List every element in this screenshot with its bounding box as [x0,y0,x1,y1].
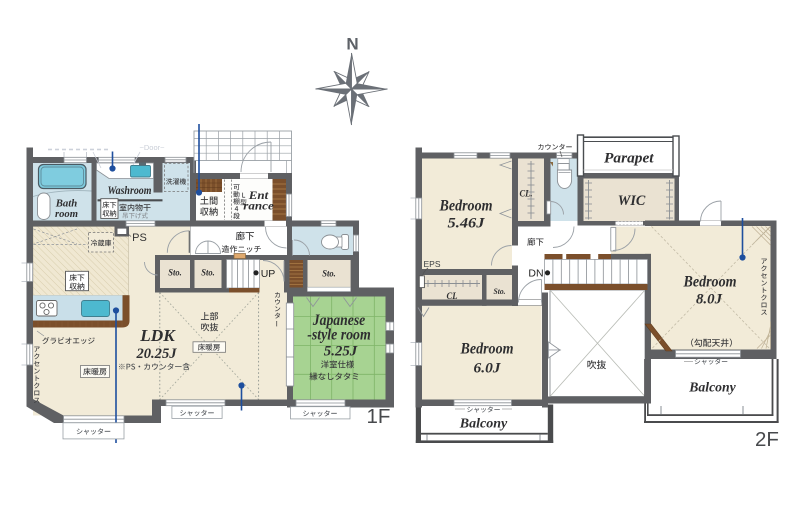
svg-text:Balcony: Balcony [459,416,508,431]
svg-text:Sto.: Sto. [168,269,182,279]
svg-text:DN: DN [528,268,543,280]
svg-text:Bath: Bath [55,199,78,210]
svg-text:N: N [346,35,358,54]
svg-text:Balcony: Balcony [688,380,736,395]
svg-text:6.0J: 6.0J [474,361,502,377]
svg-text:Bedroom: Bedroom [460,341,514,358]
svg-text:2F: 2F [755,428,779,451]
svg-text:Washroom: Washroom [108,183,152,197]
svg-text:8.0J: 8.0J [696,292,723,308]
svg-text:5.46J: 5.46J [448,216,486,232]
svg-text:CL.: CL. [520,190,533,200]
svg-text:EPS: EPS [423,259,440,269]
svg-text:rance: rance [243,201,274,213]
svg-text:CL: CL [447,292,458,302]
svg-text:Parapet: Parapet [604,151,654,167]
svg-text:LDK: LDK [139,326,176,345]
svg-text:room: room [55,209,78,220]
svg-text:UP: UP [261,268,276,280]
svg-text:Bedroom: Bedroom [439,198,493,215]
svg-text:-style room: -style room [307,327,371,344]
svg-text:Sto.: Sto. [322,270,336,280]
svg-text:~Door~: ~Door~ [139,143,165,152]
svg-text:20.25J: 20.25J [136,346,177,362]
svg-text:WIC: WIC [618,193,646,209]
svg-text:5.25J: 5.25J [324,344,358,360]
svg-text:Bedroom: Bedroom [683,274,737,291]
svg-text:Sto.: Sto. [201,269,215,279]
svg-text:1F: 1F [367,405,391,428]
svg-text:PS: PS [132,232,147,244]
svg-text:Sto.: Sto. [494,286,506,296]
